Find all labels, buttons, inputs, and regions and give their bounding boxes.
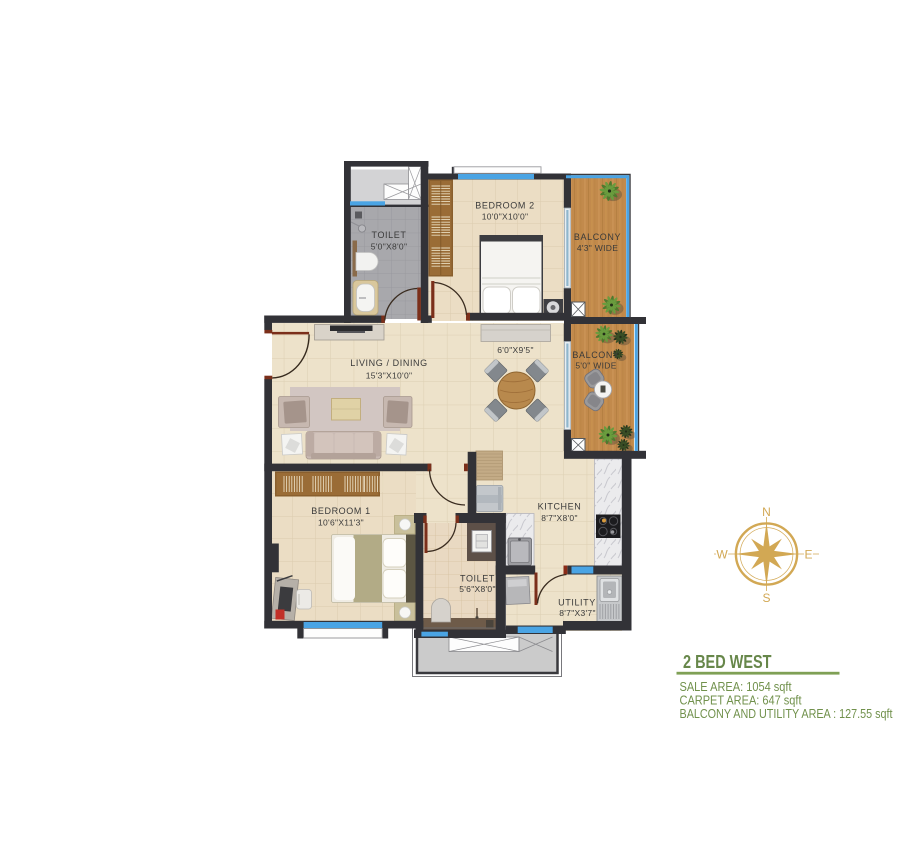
svg-text:UTILITY: UTILITY: [558, 598, 596, 608]
svg-text:TOILET: TOILET: [460, 574, 495, 584]
svg-text:BEDROOM 2: BEDROOM 2: [475, 201, 534, 211]
svg-text:15'3"X10'0": 15'3"X10'0": [366, 371, 413, 381]
svg-text:8'7"X8'0": 8'7"X8'0": [541, 513, 578, 523]
svg-text:N: N: [762, 505, 771, 519]
svg-text:10'0"X10'0": 10'0"X10'0": [482, 212, 529, 222]
svg-text:BALCONY: BALCONY: [572, 350, 619, 360]
svg-text:BALCONY AND UTILITY AREA : 127: BALCONY AND UTILITY AREA : 127.55 sqft: [680, 706, 893, 721]
svg-text:5'0" WIDE: 5'0" WIDE: [575, 361, 616, 371]
svg-text:W: W: [716, 548, 728, 562]
svg-text:LIVING / DINING: LIVING / DINING: [350, 358, 428, 368]
svg-text:2 BED WEST: 2 BED WEST: [683, 651, 772, 672]
svg-text:BALCONY: BALCONY: [574, 232, 621, 242]
svg-text:E: E: [804, 548, 812, 562]
svg-text:6'0"X9'5": 6'0"X9'5": [497, 345, 534, 355]
svg-text:4'3" WIDE: 4'3" WIDE: [577, 243, 618, 253]
svg-text:KITCHEN: KITCHEN: [538, 502, 582, 512]
svg-text:5'0"X8'0": 5'0"X8'0": [371, 242, 408, 252]
svg-text:8'7"X3'7": 8'7"X3'7": [559, 608, 596, 618]
svg-text:TOILET: TOILET: [372, 230, 407, 240]
svg-text:5'6"X8'0": 5'6"X8'0": [459, 584, 496, 594]
svg-text:10'6"X11'3": 10'6"X11'3": [318, 518, 364, 528]
svg-text:S: S: [762, 591, 770, 605]
svg-text:BEDROOM 1: BEDROOM 1: [311, 506, 370, 516]
